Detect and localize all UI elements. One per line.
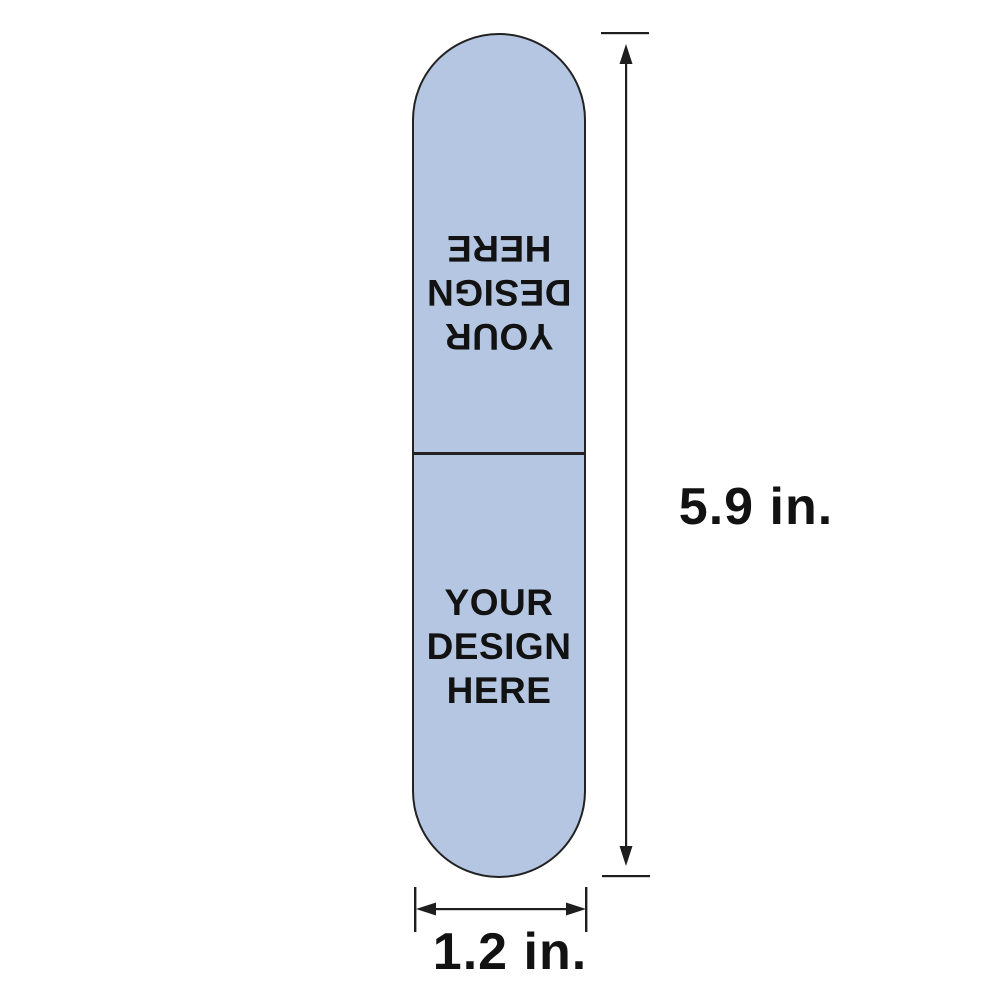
- placeholder-line: DESIGN: [412, 625, 586, 669]
- height-extension-line-top: [601, 32, 649, 34]
- design-template-canvas: YOUR DESIGN HERE YOUR DESIGN HERE 5.9 in…: [0, 0, 1000, 1000]
- placeholder-line: HERE: [412, 226, 586, 270]
- arrowhead-up-icon: [620, 44, 633, 64]
- placeholder-line: HERE: [412, 669, 586, 713]
- height-dimension-arrow: [598, 30, 654, 882]
- fold-divider-line: [412, 452, 586, 455]
- placeholder-line: DESIGN: [412, 270, 586, 314]
- height-dimension-line: [625, 58, 627, 852]
- width-dimension-label: 1.2 in.: [390, 926, 630, 978]
- arrowhead-down-icon: [620, 846, 633, 866]
- capsule-template-shape: [412, 33, 586, 878]
- arrowhead-right-icon: [566, 903, 586, 916]
- height-dimension-label: 5.9 in.: [636, 481, 876, 533]
- width-dimension-line: [428, 908, 574, 910]
- arrowhead-left-icon: [416, 903, 436, 916]
- placeholder-line: YOUR: [412, 581, 586, 625]
- top-panel-placeholder-text: YOUR DESIGN HERE: [412, 226, 586, 358]
- placeholder-line: YOUR: [412, 314, 586, 358]
- height-extension-line-bottom: [602, 875, 650, 877]
- bottom-panel-placeholder-text: YOUR DESIGN HERE: [412, 581, 586, 713]
